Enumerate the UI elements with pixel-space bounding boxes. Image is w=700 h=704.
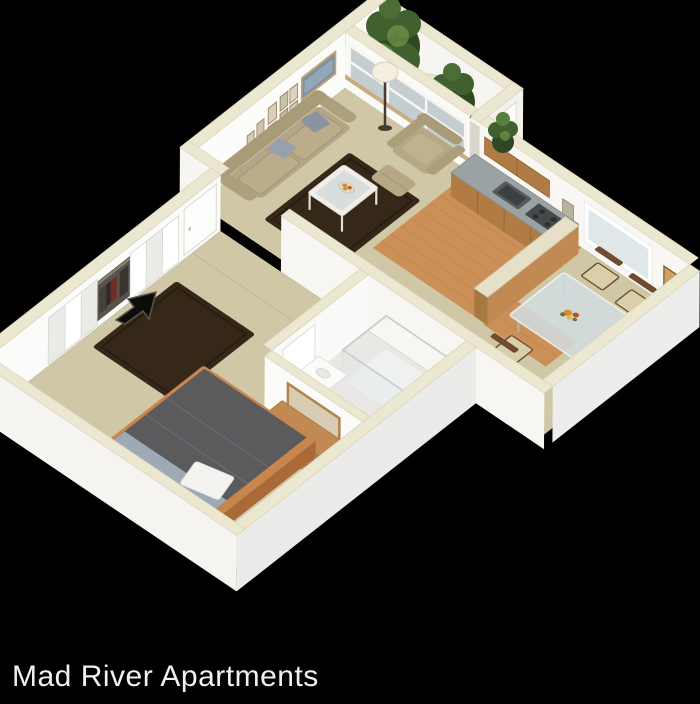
floor-plan-image: Mad River Apartments — [0, 0, 700, 704]
caption: Mad River Apartments — [12, 660, 319, 694]
floor-plan-render — [0, 0, 700, 704]
